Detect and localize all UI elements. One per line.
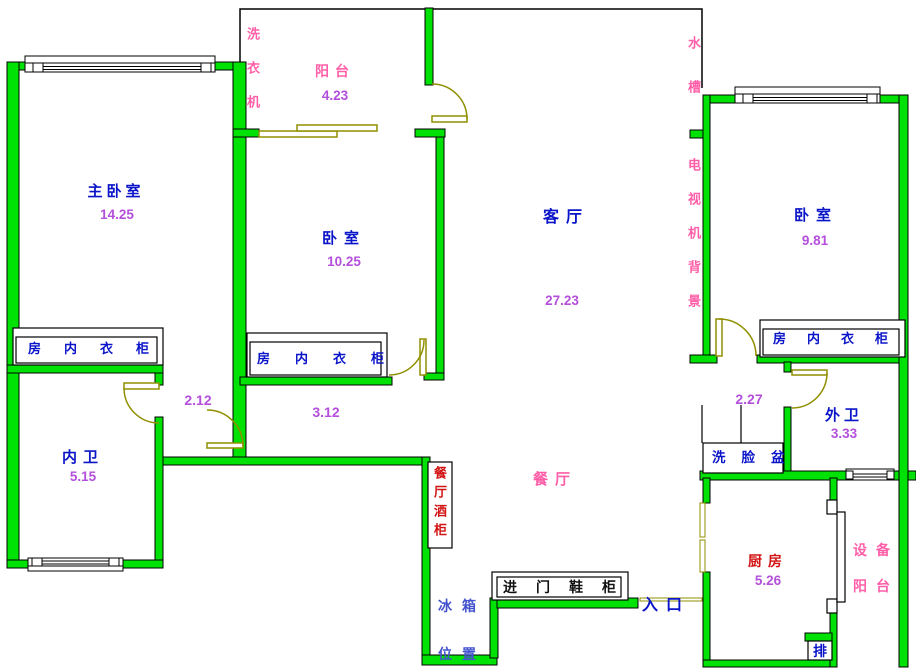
window-inner-bathroom: [28, 558, 123, 571]
outer-bathroom-label: 外卫: [822, 408, 866, 423]
equipment-balcony-label-line2: 阳台: [850, 579, 902, 593]
entrance-label: 入口: [642, 598, 690, 614]
outer-bathroom-door: [792, 370, 827, 408]
bedroom3-door: [716, 319, 756, 356]
balcony-sliding-door: [259, 125, 377, 137]
outer-bathroom-area: 3.33: [824, 427, 864, 441]
wardrobe-label-master: 房内衣柜: [28, 342, 172, 355]
duct-label: 排: [813, 644, 827, 658]
shoe-cabinet-label: 进门鞋柜: [503, 580, 635, 594]
wine-cabinet-label: 餐厅酒柜: [433, 466, 446, 542]
washing-machine-label: 洗衣机: [246, 27, 259, 129]
corridor-dimension: 3.12: [306, 405, 346, 419]
wash-basin-label: 洗脸盆: [712, 451, 801, 465]
inner-bathroom-label: 内卫: [58, 450, 108, 465]
bedroom3-area: 9.81: [795, 234, 835, 248]
balcony-label: 阳台: [310, 64, 360, 78]
sliding-door-kitchen-balcony: [827, 500, 845, 613]
master-hall-dimension: 2.12: [178, 393, 218, 407]
bedroom3-label: 卧室: [788, 208, 844, 223]
equipment-balcony-label-line1: 设备: [850, 543, 902, 557]
inner-bathroom-area: 5.15: [63, 470, 103, 484]
water-sink-label: 水槽: [687, 36, 700, 124]
living-room-label: 客厅: [538, 210, 594, 226]
wardrobe-label-bedroom3: 房内衣柜: [773, 332, 909, 345]
kitchen-area: 5.26: [748, 574, 788, 588]
bath-hall-dimension: 2.27: [729, 392, 769, 406]
balcony-area: 4.23: [315, 89, 355, 103]
bedroom2-area: 10.25: [322, 255, 366, 269]
inner-bathroom-door: [124, 383, 159, 423]
master-bedroom-label: 主卧室: [76, 184, 156, 199]
entrance-door: [640, 503, 705, 601]
master-bedroom-area: 14.25: [95, 208, 139, 222]
bedroom2-label: 卧室: [316, 231, 372, 246]
window-bedroom-3: [735, 87, 880, 103]
tv-background-label: 电视机背景: [687, 158, 700, 328]
window-equipment-balcony: [846, 469, 894, 480]
kitchen-label: 厨房: [743, 554, 793, 568]
fridge-label-line1: 冰箱: [438, 599, 486, 613]
living-room-area: 27.23: [540, 294, 584, 308]
window-master-bedroom: [25, 56, 215, 72]
fridge-label-line2: 位置: [438, 647, 486, 661]
dining-room-label: 餐厅: [529, 472, 581, 487]
balcony-door: [432, 84, 467, 122]
wardrobe-label-bedroom2: 房内衣柜: [257, 352, 409, 365]
floor-plan: 主卧室 14.25 卧室 10.25 客厅 27.23 卧室 9.81 阳台 4…: [0, 0, 916, 670]
